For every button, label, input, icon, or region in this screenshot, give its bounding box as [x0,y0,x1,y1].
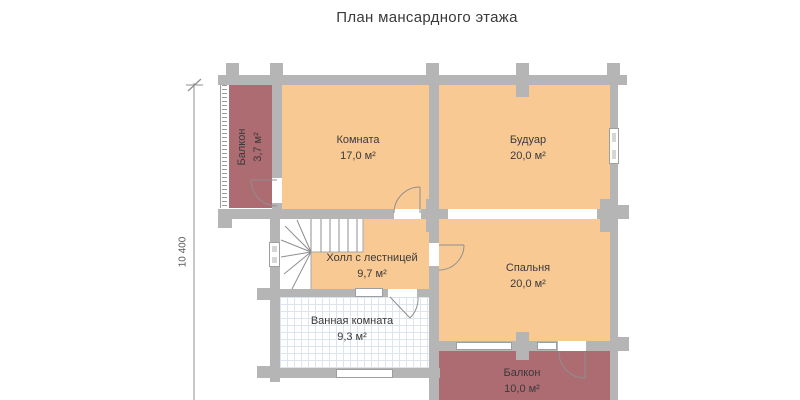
door-arc [439,245,464,270]
dimension-label: 10 400 [178,237,189,268]
door-arc [390,297,418,318]
label-balcony-bottom: Балкон 10,0 м² [504,365,541,397]
plan-linework [0,0,800,400]
room-area: 20,0 м² [506,276,550,292]
room-name: Холл с лестницей [326,250,417,266]
room-area: 3,7 м² [250,129,266,166]
room-name: Комната [336,132,379,148]
floor-plan: План мансардного этажа [0,0,800,400]
label-boudoir: Будуар 20,0 м² [510,132,546,164]
room-name: Балкон [234,129,250,166]
door-arc [559,352,585,378]
room-name: Будуар [510,132,546,148]
room-name: Ванная комната [311,313,393,329]
room-name: Балкон [504,365,541,381]
room-area: 9,7 м² [326,266,417,282]
room-name: Спальня [506,260,550,276]
label-bathroom: Ванная комната 9,3 м² [311,313,393,345]
label-bedroom: Спальня 20,0 м² [506,260,550,292]
room-area: 9,3 м² [311,329,393,345]
label-balcony-top: Балкон 3,7 м² [234,129,266,166]
room-area: 20,0 м² [510,148,546,164]
room-area: 17,0 м² [336,148,379,164]
door-arc [251,180,277,206]
room-area: 10,0 м² [504,381,541,397]
label-komnata: Комната 17,0 м² [336,132,379,164]
door-arc [394,187,420,213]
label-hall: Холл с лестницей 9,7 м² [326,250,417,282]
dimension-line [186,79,203,400]
